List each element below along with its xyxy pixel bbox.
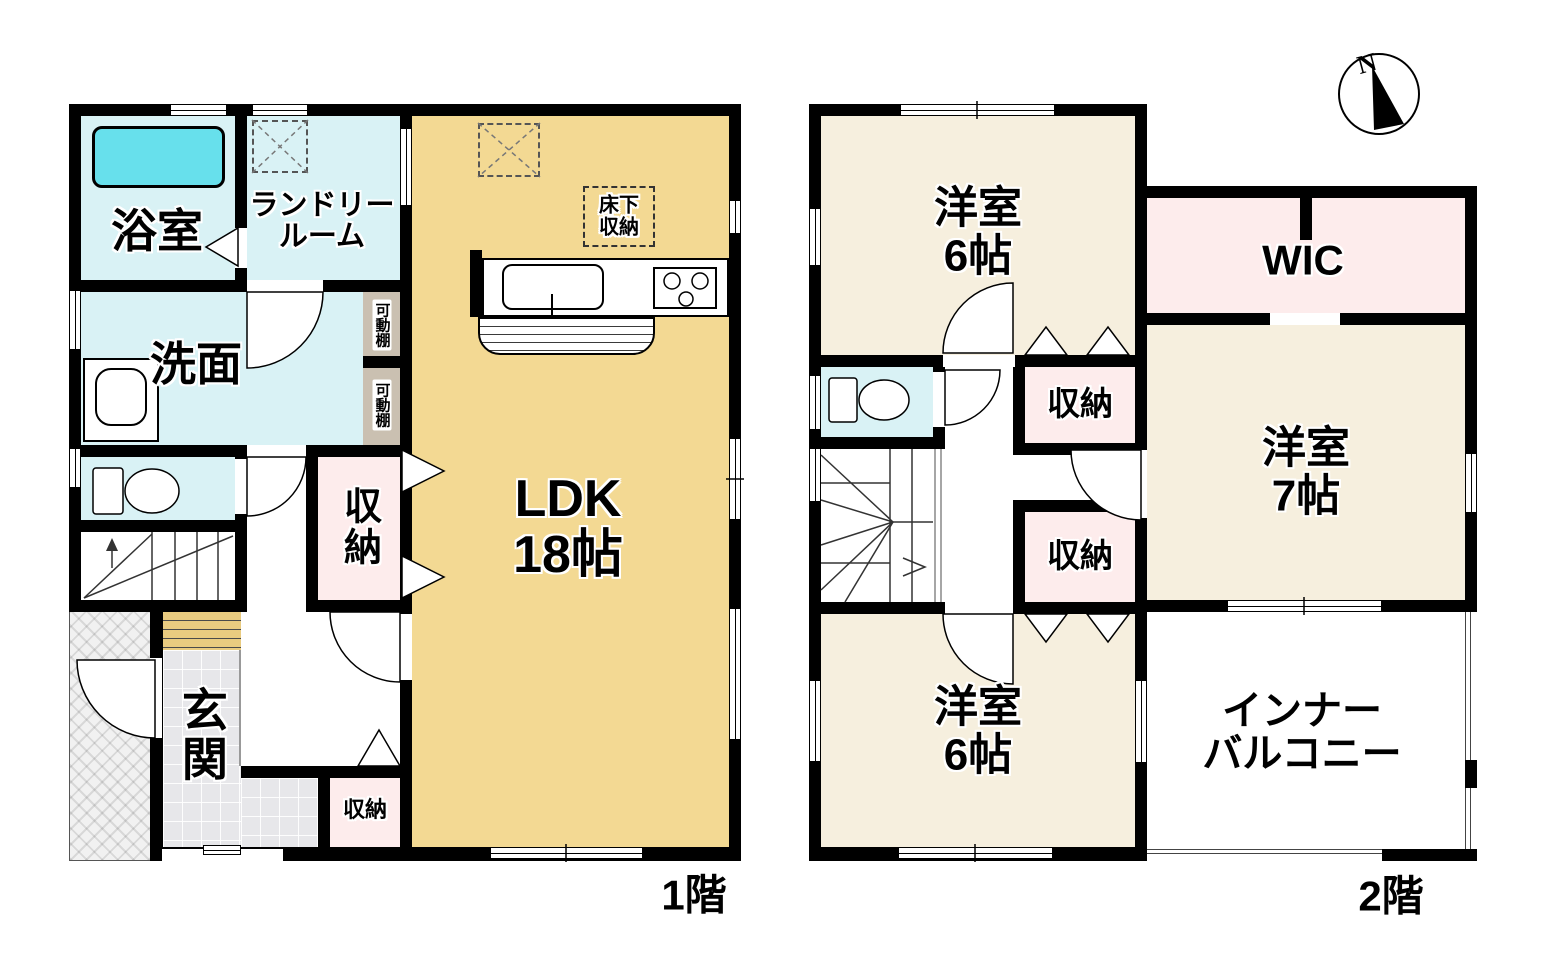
stove: [653, 267, 717, 309]
window-bedroom-east: [1465, 453, 1477, 513]
balcony-label-line2: バルコニー: [1202, 733, 1401, 776]
laundry-equipment-mark: [252, 120, 308, 173]
laundry-label-line1: ランドリー: [249, 191, 394, 222]
window-kitchen: [729, 200, 741, 234]
bathtub: [92, 126, 225, 188]
balcony-railing-east2: [1465, 788, 1471, 849]
entrance-door-marker: [203, 845, 241, 855]
storage-mid-label: 収納: [337, 486, 378, 568]
ldk-label: LDK 18帖: [513, 471, 623, 583]
floor-plan-canvas: 浴室 ランドリー ルーム 洗面 可動棚 可動棚 収納 LDK 18帖 床下 収納…: [0, 0, 1544, 971]
washbasin-bowl: [95, 368, 147, 426]
front-door-opening: [150, 658, 162, 738]
entrance-hall-step-line: [239, 650, 241, 766]
wic-label: WIC: [1262, 237, 1344, 282]
window-ldk-east2: [729, 608, 741, 740]
ldk-label-line1: LDK: [513, 471, 623, 527]
kitchen-sink: [502, 264, 604, 310]
porch: [69, 612, 150, 861]
window-ldk-east1: [729, 438, 741, 520]
bedroom-east-label: 洋室 7帖: [1262, 424, 1350, 519]
floor1-label: 1階: [661, 872, 726, 917]
bedroom-south-line1: 洋室: [934, 683, 1022, 731]
balcony-post-east: [1465, 760, 1477, 788]
balcony-post-south: [1382, 849, 1477, 861]
hallway-1f-upper: [247, 457, 306, 612]
bedroom-east-door-opening: [1135, 450, 1147, 518]
hallway-2f: [945, 367, 1013, 602]
window-bath: [170, 104, 227, 116]
window-ldk-south: [490, 847, 643, 859]
underfloor-label-line1: 床下: [599, 195, 639, 217]
entrance-tile-lower: [241, 778, 318, 847]
ldk-door-opening: [400, 614, 412, 680]
window-bedroom-south-balcony: [1135, 680, 1147, 763]
entrance-label: 玄関: [176, 686, 226, 784]
window-toilet-2f: [809, 375, 821, 430]
bedroom-north-door-opening: [943, 355, 1015, 367]
hallway-1f-lower: [241, 612, 400, 766]
bedroom-south-line2: 6帖: [934, 731, 1022, 779]
storage-south-label: 収納: [1047, 538, 1113, 574]
toilet-door-opening-1f: [235, 459, 247, 514]
stairs-1f: [81, 532, 235, 600]
bedroom-east-line1: 洋室: [1262, 424, 1350, 472]
storage-bottom-label: 収納: [343, 798, 387, 822]
wic-door-opening: [1270, 313, 1340, 325]
floor2-label: 2階: [1358, 873, 1423, 918]
compass-circle: [1339, 54, 1419, 134]
bedroom-north-line1: 洋室: [934, 184, 1022, 232]
stairs-2f: [821, 449, 933, 602]
compass-north-label: N: [1354, 48, 1379, 80]
washroom-label: 洗面: [150, 340, 242, 390]
bedroom-north-line2: 6帖: [934, 232, 1022, 280]
toilet-room-1f: [81, 457, 235, 520]
balcony-label: インナー バルコニー: [1202, 690, 1401, 776]
window-laundry: [252, 104, 308, 116]
balcony-railing-east1: [1465, 612, 1471, 760]
hallway-door-opening: [247, 445, 306, 457]
window-stairs-2f: [809, 448, 821, 502]
window-toilet-1f: [69, 448, 81, 488]
underfloor-storage-label: 床下 収納: [599, 195, 639, 238]
ldk-label-line2: 18帖: [513, 527, 623, 583]
window-bedroom-south-bottom: [898, 847, 1053, 859]
window-bedroom-east-balcony: [1227, 600, 1382, 612]
stairs-2f-open-side: [933, 449, 945, 602]
storage-north-label: 収納: [1047, 386, 1113, 422]
laundry-label-line2: ルーム: [249, 222, 394, 253]
compass: [1339, 54, 1419, 134]
balcony-label-line1: インナー: [1202, 690, 1401, 733]
toilet-room-2f: [821, 367, 933, 437]
window-bedroom-south-west: [809, 680, 821, 762]
kitchen-wall-stub: [470, 250, 482, 317]
toilet-door-opening-2f: [933, 372, 945, 427]
bath-label: 浴室: [111, 207, 203, 257]
window-bedroom-north-west: [809, 208, 821, 266]
entrance-step: [163, 612, 241, 650]
shelf-label-lower: 可動棚: [373, 380, 392, 431]
bedroom-south-label: 洋室 6帖: [934, 683, 1022, 778]
laundry-label: ランドリー ルーム: [249, 191, 394, 254]
shelf-label-upper: 可動棚: [373, 300, 392, 351]
balcony-railing-south: [1147, 849, 1382, 854]
washroom-door-opening: [247, 280, 323, 292]
window-bedroom-north-top: [900, 104, 1055, 116]
wic-wall-stub: [1300, 198, 1312, 240]
underfloor-label-line2: 収納: [599, 217, 639, 239]
bath-door-opening: [235, 228, 247, 268]
kitchen-island-front: [478, 317, 655, 355]
laundry-sliding-door: [400, 128, 412, 206]
window-washroom: [69, 290, 81, 350]
bedroom-north-label: 洋室 6帖: [934, 184, 1022, 279]
bedroom-east-line2: 7帖: [1262, 472, 1350, 520]
hallway-2f-east: [1013, 455, 1135, 500]
bedroom-south-door-opening: [945, 602, 1013, 614]
ldk-equipment-mark: [478, 123, 540, 177]
